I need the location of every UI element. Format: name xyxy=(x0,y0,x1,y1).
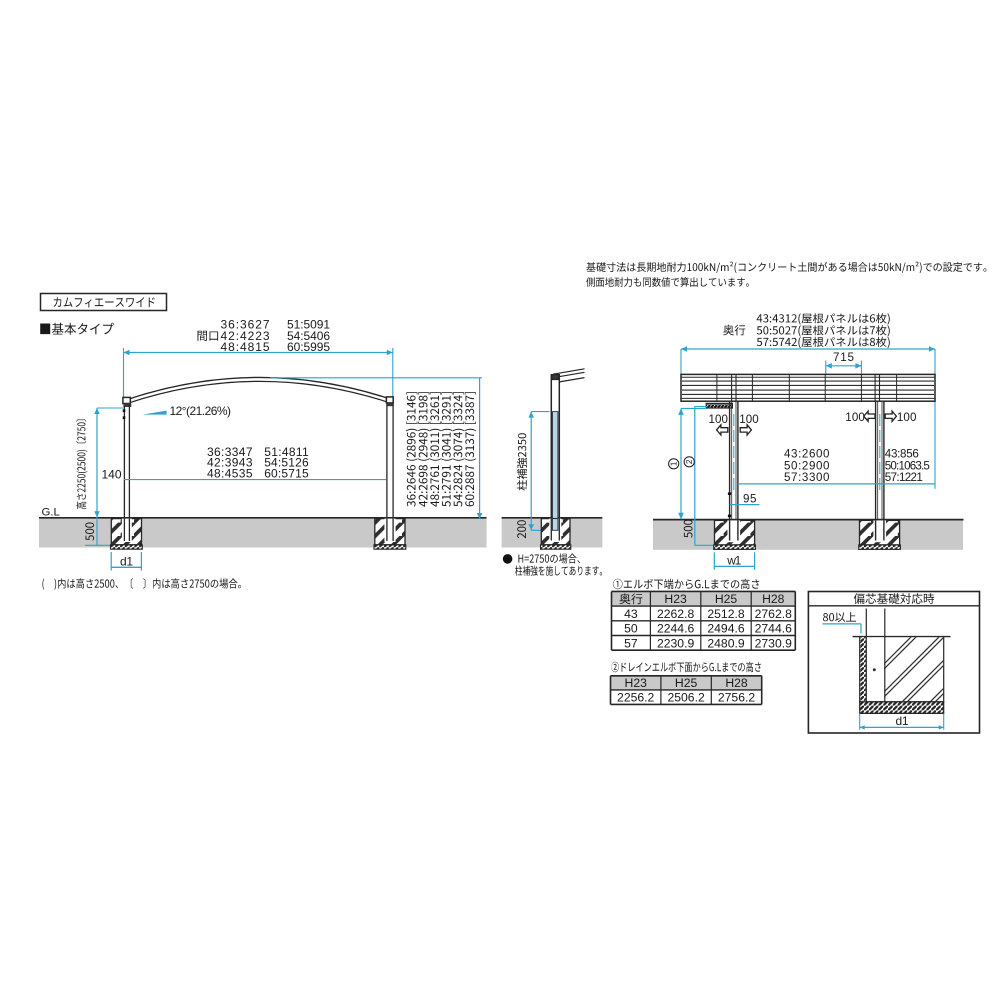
svg-text:2744.6: 2744.6 xyxy=(755,622,792,636)
svg-text:2480.9: 2480.9 xyxy=(707,636,744,650)
svg-text:95: 95 xyxy=(743,493,757,506)
svg-text:H23: H23 xyxy=(625,676,648,690)
svg-text:2: 2 xyxy=(685,459,694,464)
svg-text:H28: H28 xyxy=(762,592,785,606)
svg-text:715: 715 xyxy=(833,351,854,364)
svg-text:2762.8: 2762.8 xyxy=(755,607,792,621)
svg-text:2262.8: 2262.8 xyxy=(657,607,694,621)
svg-text:100: 100 xyxy=(845,411,865,424)
svg-text:2730.9: 2730.9 xyxy=(755,636,792,650)
svg-text:2512.8: 2512.8 xyxy=(707,607,744,621)
svg-text:12°(21.26%): 12°(21.26%) xyxy=(170,404,232,418)
svg-text:50: 50 xyxy=(624,622,638,636)
svg-text:2256.2: 2256.2 xyxy=(617,690,654,704)
svg-text:43: 43 xyxy=(624,607,638,621)
svg-text:2494.6: 2494.6 xyxy=(707,622,744,636)
svg-text:d1: d1 xyxy=(120,554,133,568)
svg-text:2230.9: 2230.9 xyxy=(657,636,694,650)
svg-text:H25: H25 xyxy=(715,592,738,606)
svg-text:48:4535: 48:4535 xyxy=(207,466,253,480)
svg-text:H28: H28 xyxy=(725,676,748,690)
svg-text:60:5715: 60:5715 xyxy=(264,466,309,480)
svg-text:d1: d1 xyxy=(896,714,909,728)
svg-text:2506.2: 2506.2 xyxy=(667,690,704,704)
svg-text:H23: H23 xyxy=(664,592,687,606)
svg-text:57: 57 xyxy=(624,636,638,650)
svg-text:100: 100 xyxy=(709,413,729,426)
svg-text:H25: H25 xyxy=(675,676,698,690)
svg-text:57:3300: 57:3300 xyxy=(784,471,830,484)
svg-text:140: 140 xyxy=(102,467,122,481)
svg-text:w1: w1 xyxy=(726,553,741,567)
svg-text:1: 1 xyxy=(670,461,679,466)
svg-text:100: 100 xyxy=(739,413,759,426)
svg-text:2244.6: 2244.6 xyxy=(657,622,694,636)
svg-text:57:1221: 57:1221 xyxy=(885,471,923,484)
svg-text:G.L: G.L xyxy=(42,506,60,518)
svg-text:2756.2: 2756.2 xyxy=(718,690,755,704)
svg-text:100: 100 xyxy=(897,411,917,424)
